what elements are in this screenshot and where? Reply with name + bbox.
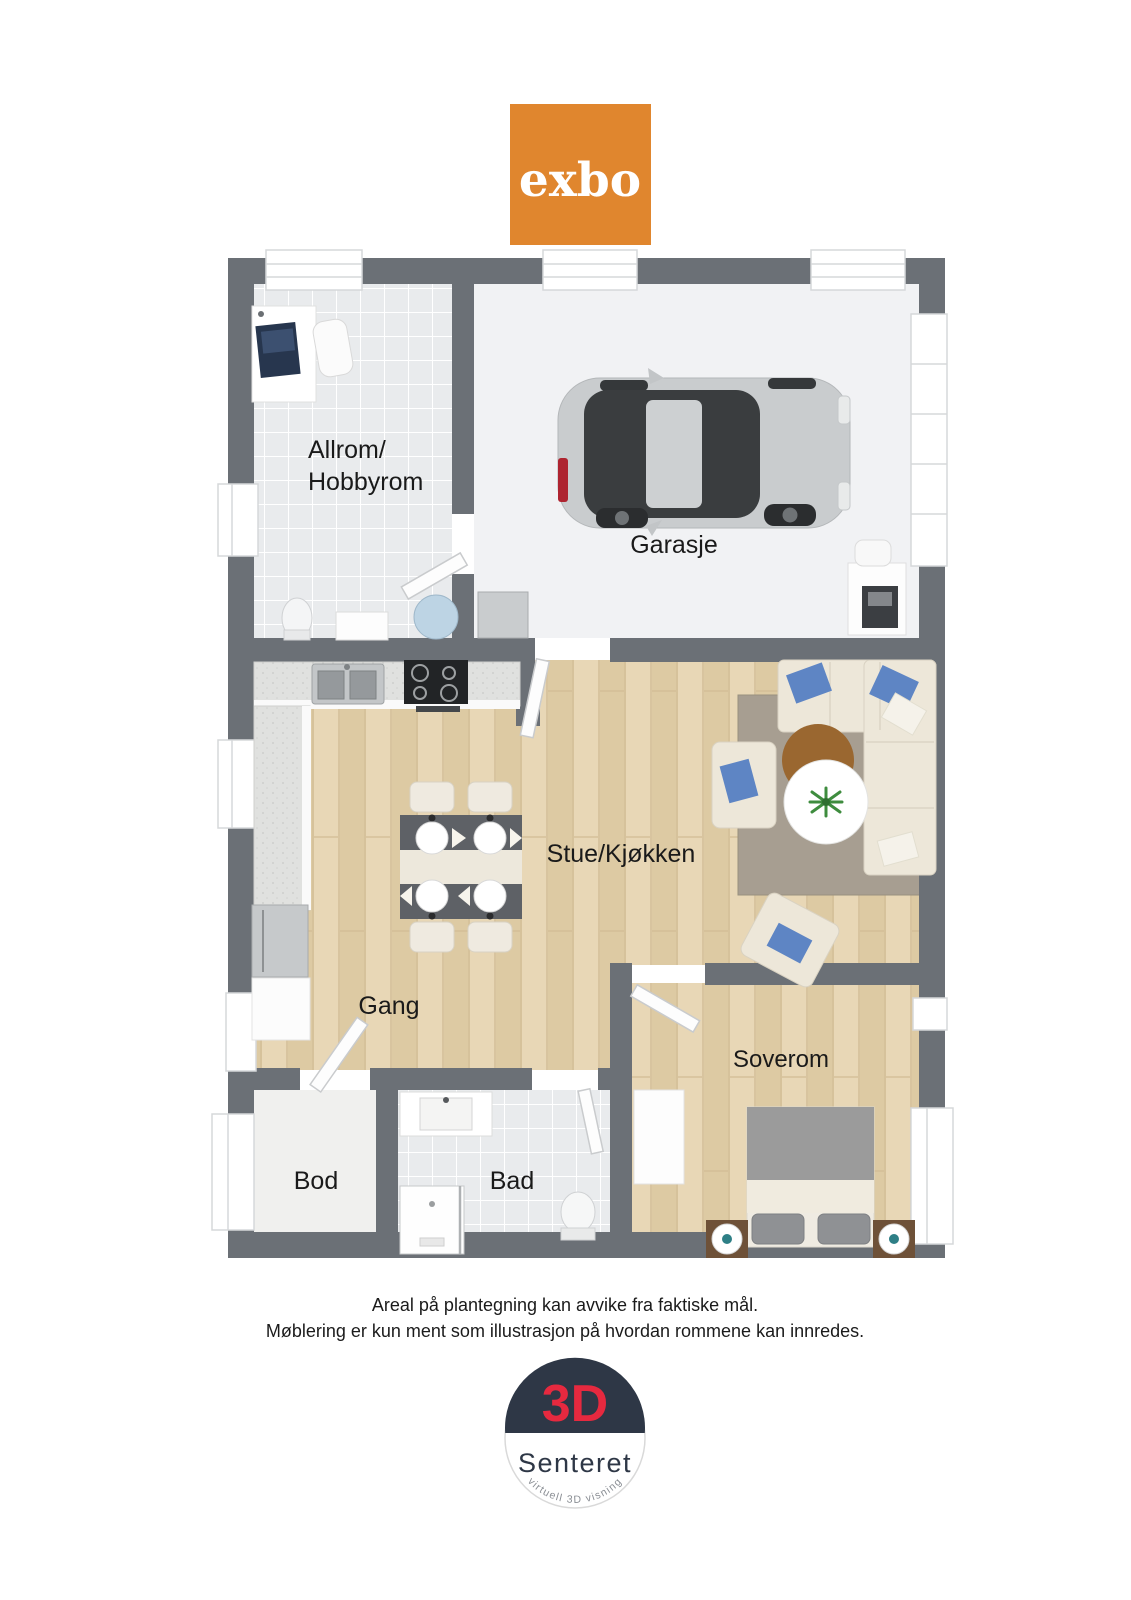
room-label-allrom: Allrom/: [308, 436, 386, 464]
kitchen-sink: [312, 664, 384, 704]
garage-cabinet: [478, 592, 528, 638]
3d-senteret-logo: 3D Senteret virtuell 3D visning: [505, 1358, 645, 1508]
window-right-small: [913, 998, 947, 1030]
car: [558, 368, 850, 536]
floor-plan-canvas: exbo: [0, 0, 1131, 1600]
dining-chair: [468, 782, 512, 812]
window-top-garasje-1: [543, 250, 637, 290]
nightstand-right: [873, 1220, 915, 1258]
allrom-toilet: [282, 598, 312, 640]
window-left-kjokken: [218, 740, 258, 828]
window-top-allrom: [266, 250, 362, 290]
floor-plan-page: exbo: [0, 0, 1131, 1600]
dining-chair: [468, 922, 512, 952]
exbo-logo-text: exbo: [519, 153, 641, 208]
room-label-stue: Stue/Kjøkken: [547, 840, 696, 868]
dining-chair: [410, 922, 454, 952]
dining-chair: [410, 782, 454, 812]
exbo-logo: exbo: [510, 104, 651, 245]
disclaimer-line-1: Areal på plantegning kan avvike fra fakt…: [372, 1295, 758, 1315]
shower: [400, 1186, 464, 1254]
window-left-bod: [212, 1114, 254, 1230]
bed-pillow: [818, 1214, 870, 1244]
nightstand-left: [706, 1220, 748, 1258]
window-right-soverom: [911, 1108, 953, 1244]
logo-3d-text: 3D: [542, 1375, 608, 1433]
bed: [747, 1107, 874, 1247]
plant: [810, 788, 842, 816]
bathroom-toilet: [561, 1192, 595, 1240]
room-label-gang: Gang: [358, 992, 419, 1020]
window-left-allrom: [218, 484, 258, 556]
logo-senteret-text: Senteret: [518, 1448, 632, 1478]
room-label-bad: Bad: [490, 1167, 534, 1195]
bed-pillow: [752, 1214, 804, 1244]
garage-door: [911, 314, 947, 566]
armchair-left: [712, 742, 776, 828]
room-label-garasje: Garasje: [630, 531, 718, 559]
allrom-round-table: [414, 595, 458, 639]
wardrobe: [634, 1090, 684, 1184]
disclaimer: Areal på plantegning kan avvike fra fakt…: [266, 1295, 864, 1341]
bod-floor: [254, 1090, 378, 1234]
allrom-desk: [252, 306, 316, 402]
room-label-bod: Bod: [294, 1167, 338, 1195]
hall-closet: [252, 978, 310, 1040]
window-top-garasje-2: [811, 250, 905, 290]
bathroom-vanity: [400, 1092, 492, 1136]
allrom-cabinet: [336, 612, 388, 640]
room-label-soverom: Soverom: [733, 1046, 829, 1073]
room-label-allrom-2: Hobbyrom: [308, 468, 423, 496]
disclaimer-line-2: Møblering er kun ment som illustrasjon p…: [266, 1321, 864, 1341]
fridge: [252, 905, 308, 977]
